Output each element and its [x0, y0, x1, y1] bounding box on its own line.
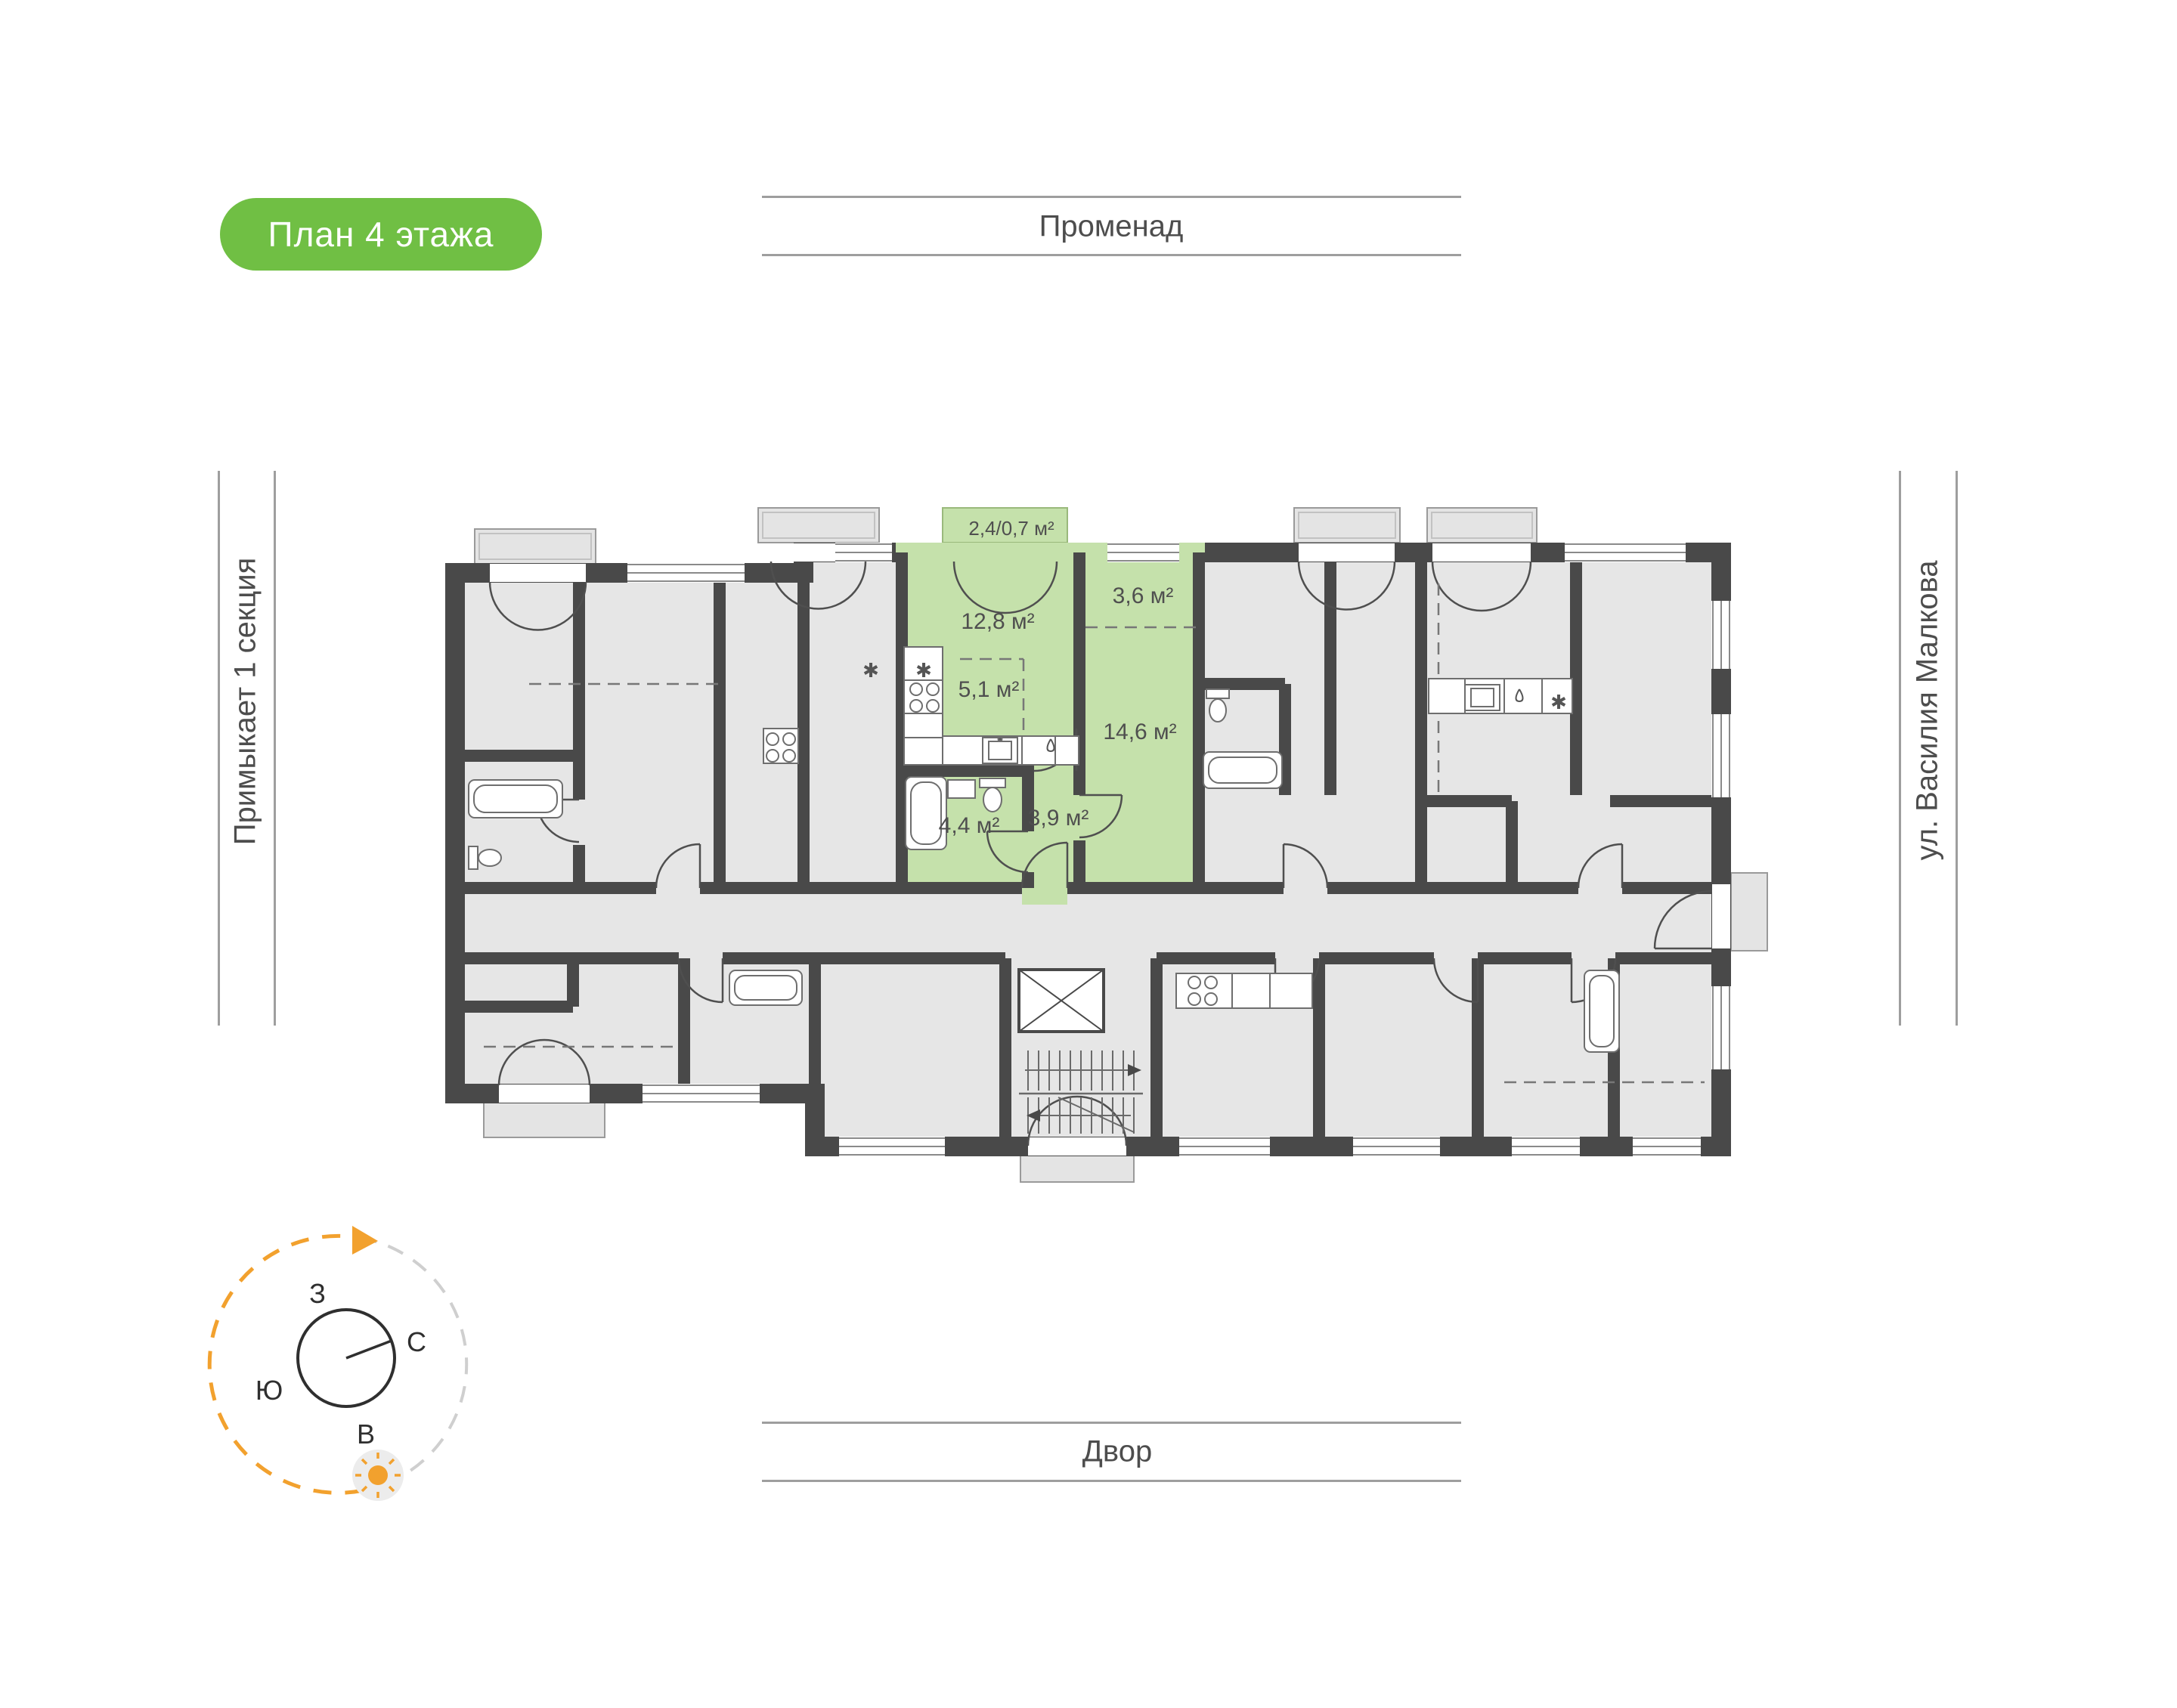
balcony-right [1731, 873, 1767, 951]
compass-arrow-icon [352, 1226, 378, 1255]
area-label-balcony: 2,4/0,7 м² [968, 517, 1054, 540]
compass-north: С [407, 1326, 426, 1357]
area-label-hallway: 3,9 м² [1028, 806, 1089, 831]
area-label-bedroom: 14,6 м² [1103, 719, 1176, 744]
compass-west: З [309, 1278, 326, 1309]
floor-plan-canvas: ✱ ✱ ✱ 2,4/0,7 м² 12,8 м² 3,6 м² 5,1 м² 1… [0, 0, 2177, 1708]
compass: З С Ю В [209, 1226, 466, 1501]
area-label-dressing: 3,6 м² [1113, 583, 1174, 608]
area-label-kitchen-zone: 5,1 м² [958, 677, 1020, 702]
area-label-kitchen-living: 12,8 м² [961, 609, 1034, 634]
compass-south: Ю [255, 1375, 283, 1406]
area-label-bathroom: 4,4 м² [939, 813, 1000, 838]
balcony-bottom-left [484, 1103, 605, 1137]
floor-plan-page: План 4 этажа Променад Двор Примыкает 1 с… [0, 0, 2177, 1708]
compass-east: В [357, 1419, 375, 1450]
elevator [1019, 970, 1104, 1032]
appliance-icon-3: ✱ [1550, 691, 1567, 713]
sun-icon [352, 1450, 404, 1501]
appliance-icon-1: ✱ [915, 659, 932, 682]
appliance-icon-2: ✱ [862, 659, 879, 682]
